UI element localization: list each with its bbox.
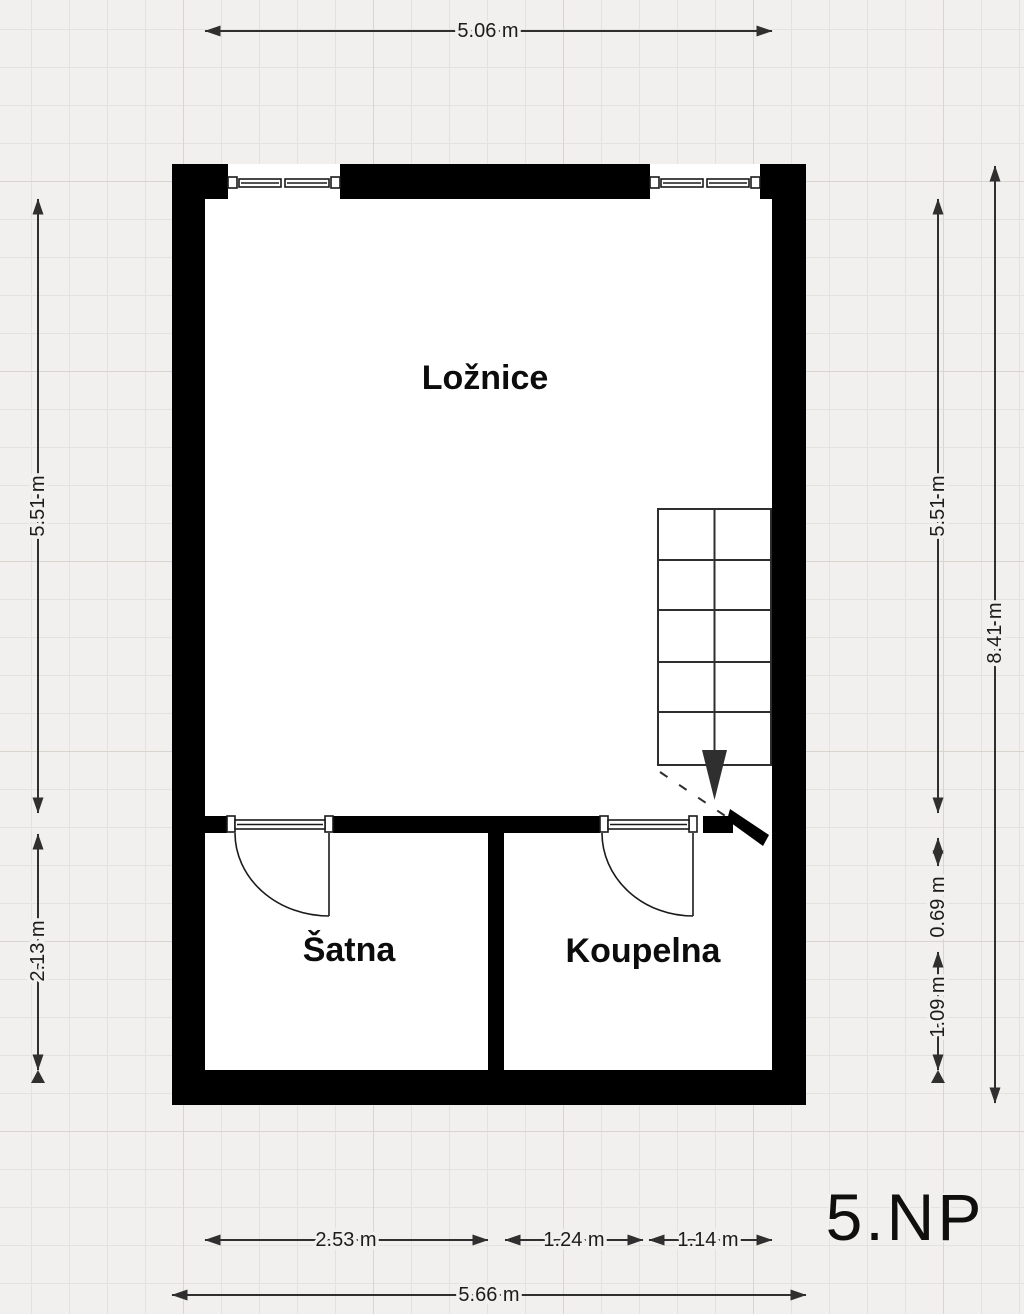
dimension-label: 8.41 m (984, 602, 1006, 663)
wall-interior-a (205, 816, 227, 833)
dimension-label: 5.06 m (457, 20, 518, 42)
dimension-end-tick-icon (931, 1070, 945, 1083)
dimension-bottom-right: 1.14 m (649, 1229, 772, 1251)
door-jamb-icon (227, 816, 235, 832)
dimension-label: 1.24 m (543, 1229, 604, 1251)
floor-plan-page: Ložnice Šatna Koupelna 5.06 m 5.51 m 2.1… (0, 0, 1024, 1314)
dimension-right-mid: 0.69 m (927, 838, 949, 938)
dimension-label: 5.51 m (27, 475, 49, 536)
door-jamb-icon (325, 816, 333, 832)
dimension-label: 5.51 m (927, 475, 949, 536)
dimension-label: 1.14 m (677, 1229, 738, 1251)
wall-top-center (340, 164, 650, 199)
dimension-right-upper: 5.51 m (927, 199, 949, 813)
wall-left (172, 164, 205, 1105)
dimension-label: 2.13 m (27, 920, 49, 981)
dimension-bottom-mid: 1.24 m (505, 1229, 643, 1251)
window-jamb-icon (228, 177, 237, 188)
wall-interior-b (333, 816, 600, 833)
dimension-top-width: 5.06 m (205, 20, 772, 42)
dimension-right-lower: 1.09 m (927, 952, 949, 1083)
floor-level-label: 5.NP (826, 1180, 985, 1254)
wall-right (772, 164, 806, 1105)
dimension-label: 2.53 m (315, 1229, 376, 1251)
door-jamb-icon (600, 816, 608, 832)
wall-closet-bathroom (488, 816, 504, 1070)
dimension-left-lower: 2.13 m (27, 834, 49, 1083)
window-jamb-icon (751, 177, 760, 188)
dimension-end-tick-icon (31, 1070, 45, 1083)
window-jamb-icon (650, 177, 659, 188)
dimension-label: 1.09 m (927, 976, 949, 1037)
room-label-bedroom: Ložnice (422, 359, 549, 397)
dimension-bottom-total: 5.66 m (172, 1284, 806, 1306)
room-label-closet: Šatna (303, 930, 397, 969)
wall-bottom (172, 1070, 806, 1105)
dimension-label: 0.69 m (927, 876, 949, 937)
dimension-bottom-closet: 2.53 m (205, 1229, 488, 1251)
dimension-label: 5.66 m (458, 1284, 519, 1306)
dimension-right-total: 8.41 m (984, 166, 1006, 1103)
floor-plan-canvas: Ložnice Šatna Koupelna 5.06 m 5.51 m 2.1… (0, 0, 1024, 1314)
room-label-bathroom: Koupelna (566, 932, 722, 970)
window-jamb-icon (331, 177, 340, 188)
dimension-left-upper: 5.51 m (27, 199, 49, 813)
door-jamb-icon (689, 816, 697, 832)
